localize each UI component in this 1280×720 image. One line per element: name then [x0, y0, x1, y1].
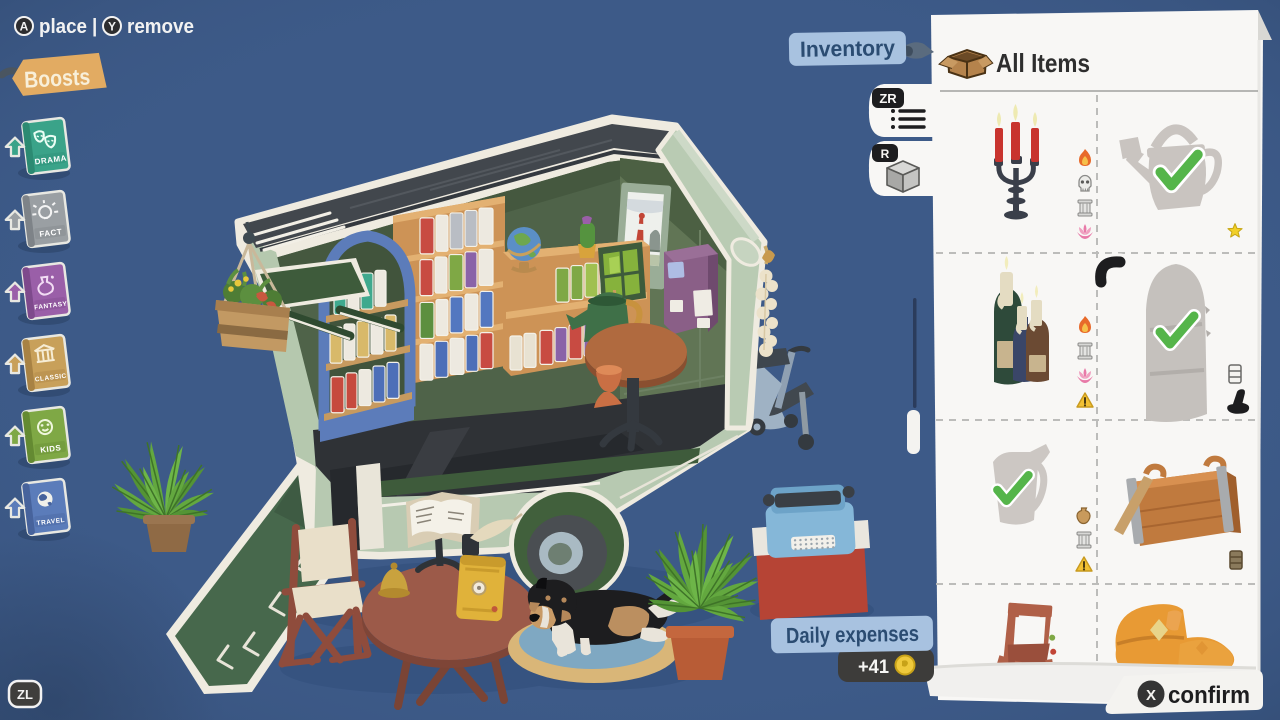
svg-text:|: |	[92, 16, 97, 37]
svg-text:ZR: ZR	[879, 91, 897, 106]
svg-text:place: place	[39, 16, 87, 38]
svg-text:Daily expenses: Daily expenses	[786, 621, 919, 648]
svg-text:Boosts: Boosts	[24, 63, 91, 92]
svg-text:X: X	[1146, 687, 1156, 704]
svg-text:Inventory: Inventory	[800, 35, 896, 62]
svg-text:+41: +41	[858, 657, 889, 678]
svg-text:A: A	[20, 20, 29, 34]
svg-text:ZL: ZL	[17, 687, 33, 702]
svg-text:Y: Y	[108, 20, 116, 34]
svg-text:All Items: All Items	[996, 48, 1090, 78]
svg-text:remove: remove	[127, 16, 194, 38]
svg-text:R: R	[881, 147, 890, 161]
svg-text:confirm: confirm	[1168, 682, 1250, 709]
